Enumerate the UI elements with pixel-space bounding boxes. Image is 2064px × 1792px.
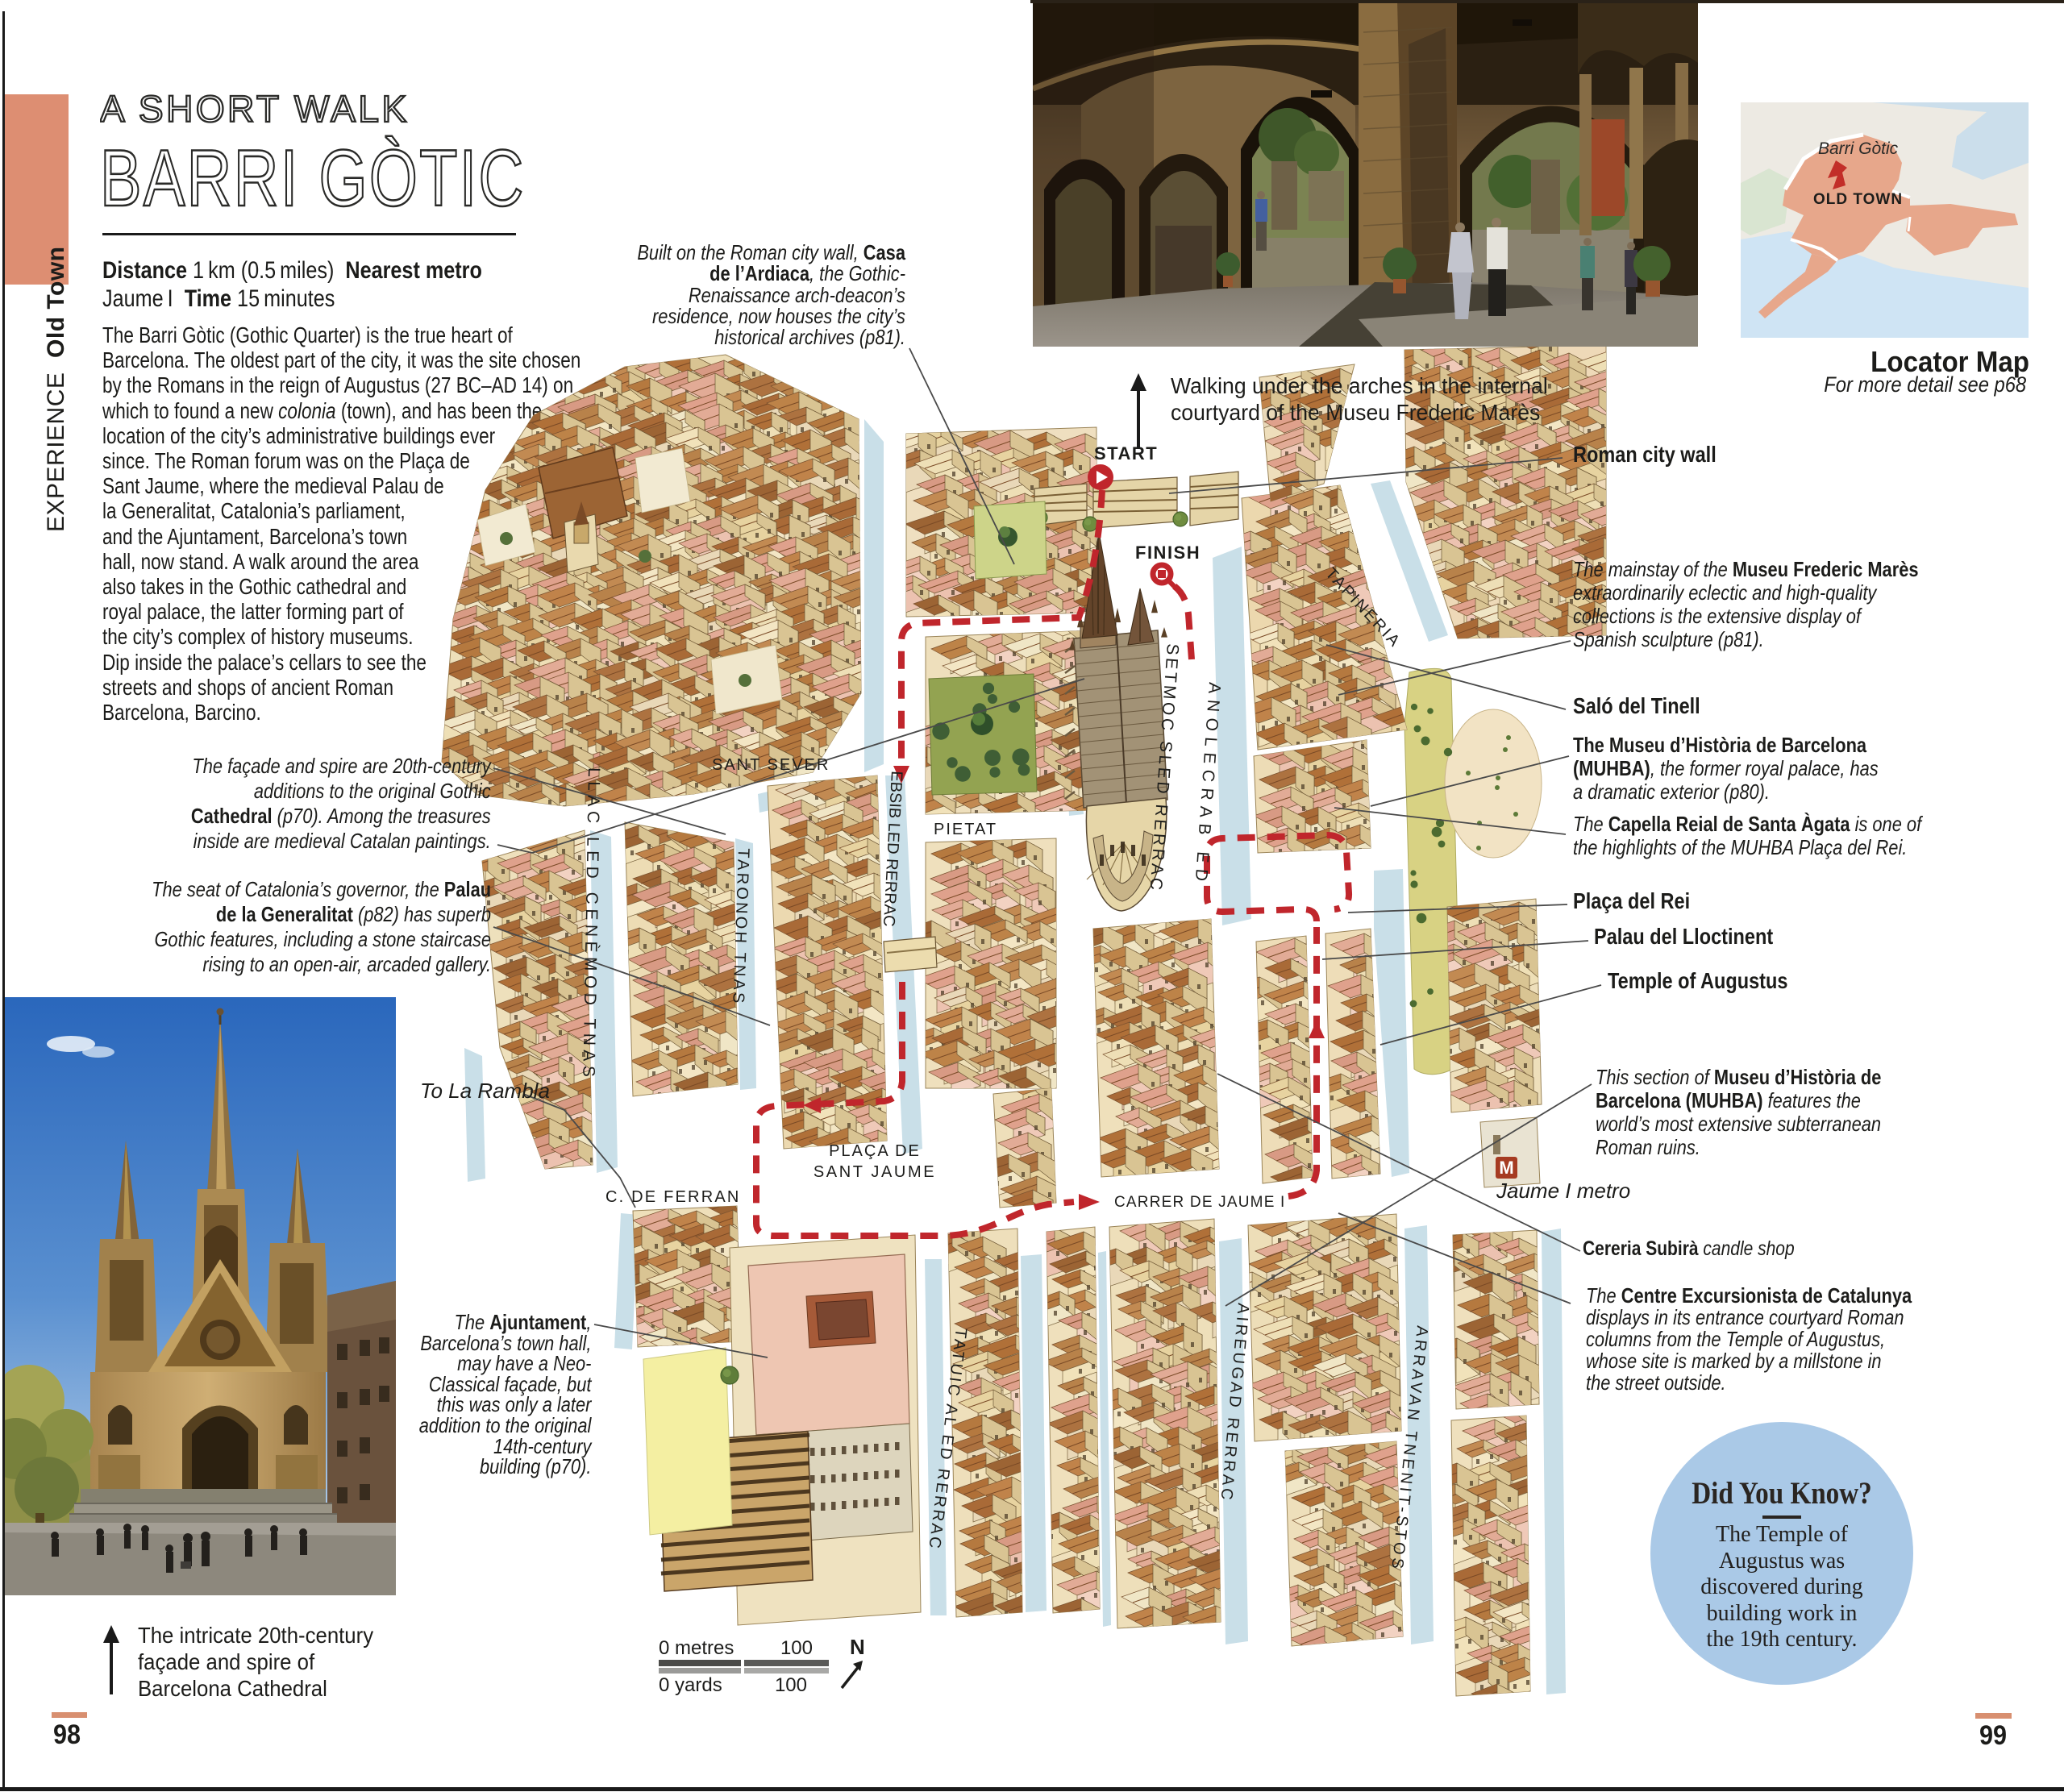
svg-text:SANT SEVER: SANT SEVER [712, 756, 830, 774]
svg-text:FINISH: FINISH [1135, 543, 1201, 563]
svg-text:CARRER DE JAUME I: CARRER DE JAUME I [1114, 1194, 1286, 1211]
svg-text:PIETAT: PIETAT [934, 821, 997, 838]
svg-text:0 metres: 0 metres [659, 1637, 734, 1659]
svg-text:Barri Gòtic: Barri Gòtic [1818, 139, 1899, 158]
svg-text:N: N [850, 1635, 865, 1659]
svg-text:M: M [1499, 1158, 1513, 1178]
svg-text:0 yards: 0 yards [659, 1674, 722, 1696]
svg-text:100: 100 [780, 1637, 813, 1659]
svg-text:C. DE FERRAN: C. DE FERRAN [605, 1188, 741, 1206]
svg-text:OLD TOWN: OLD TOWN [1813, 191, 1903, 208]
svg-text:PLAÇA DE: PLAÇA DE [829, 1142, 921, 1160]
svg-text:SANT JAUME: SANT JAUME [814, 1163, 936, 1181]
svg-text:100: 100 [775, 1674, 807, 1696]
